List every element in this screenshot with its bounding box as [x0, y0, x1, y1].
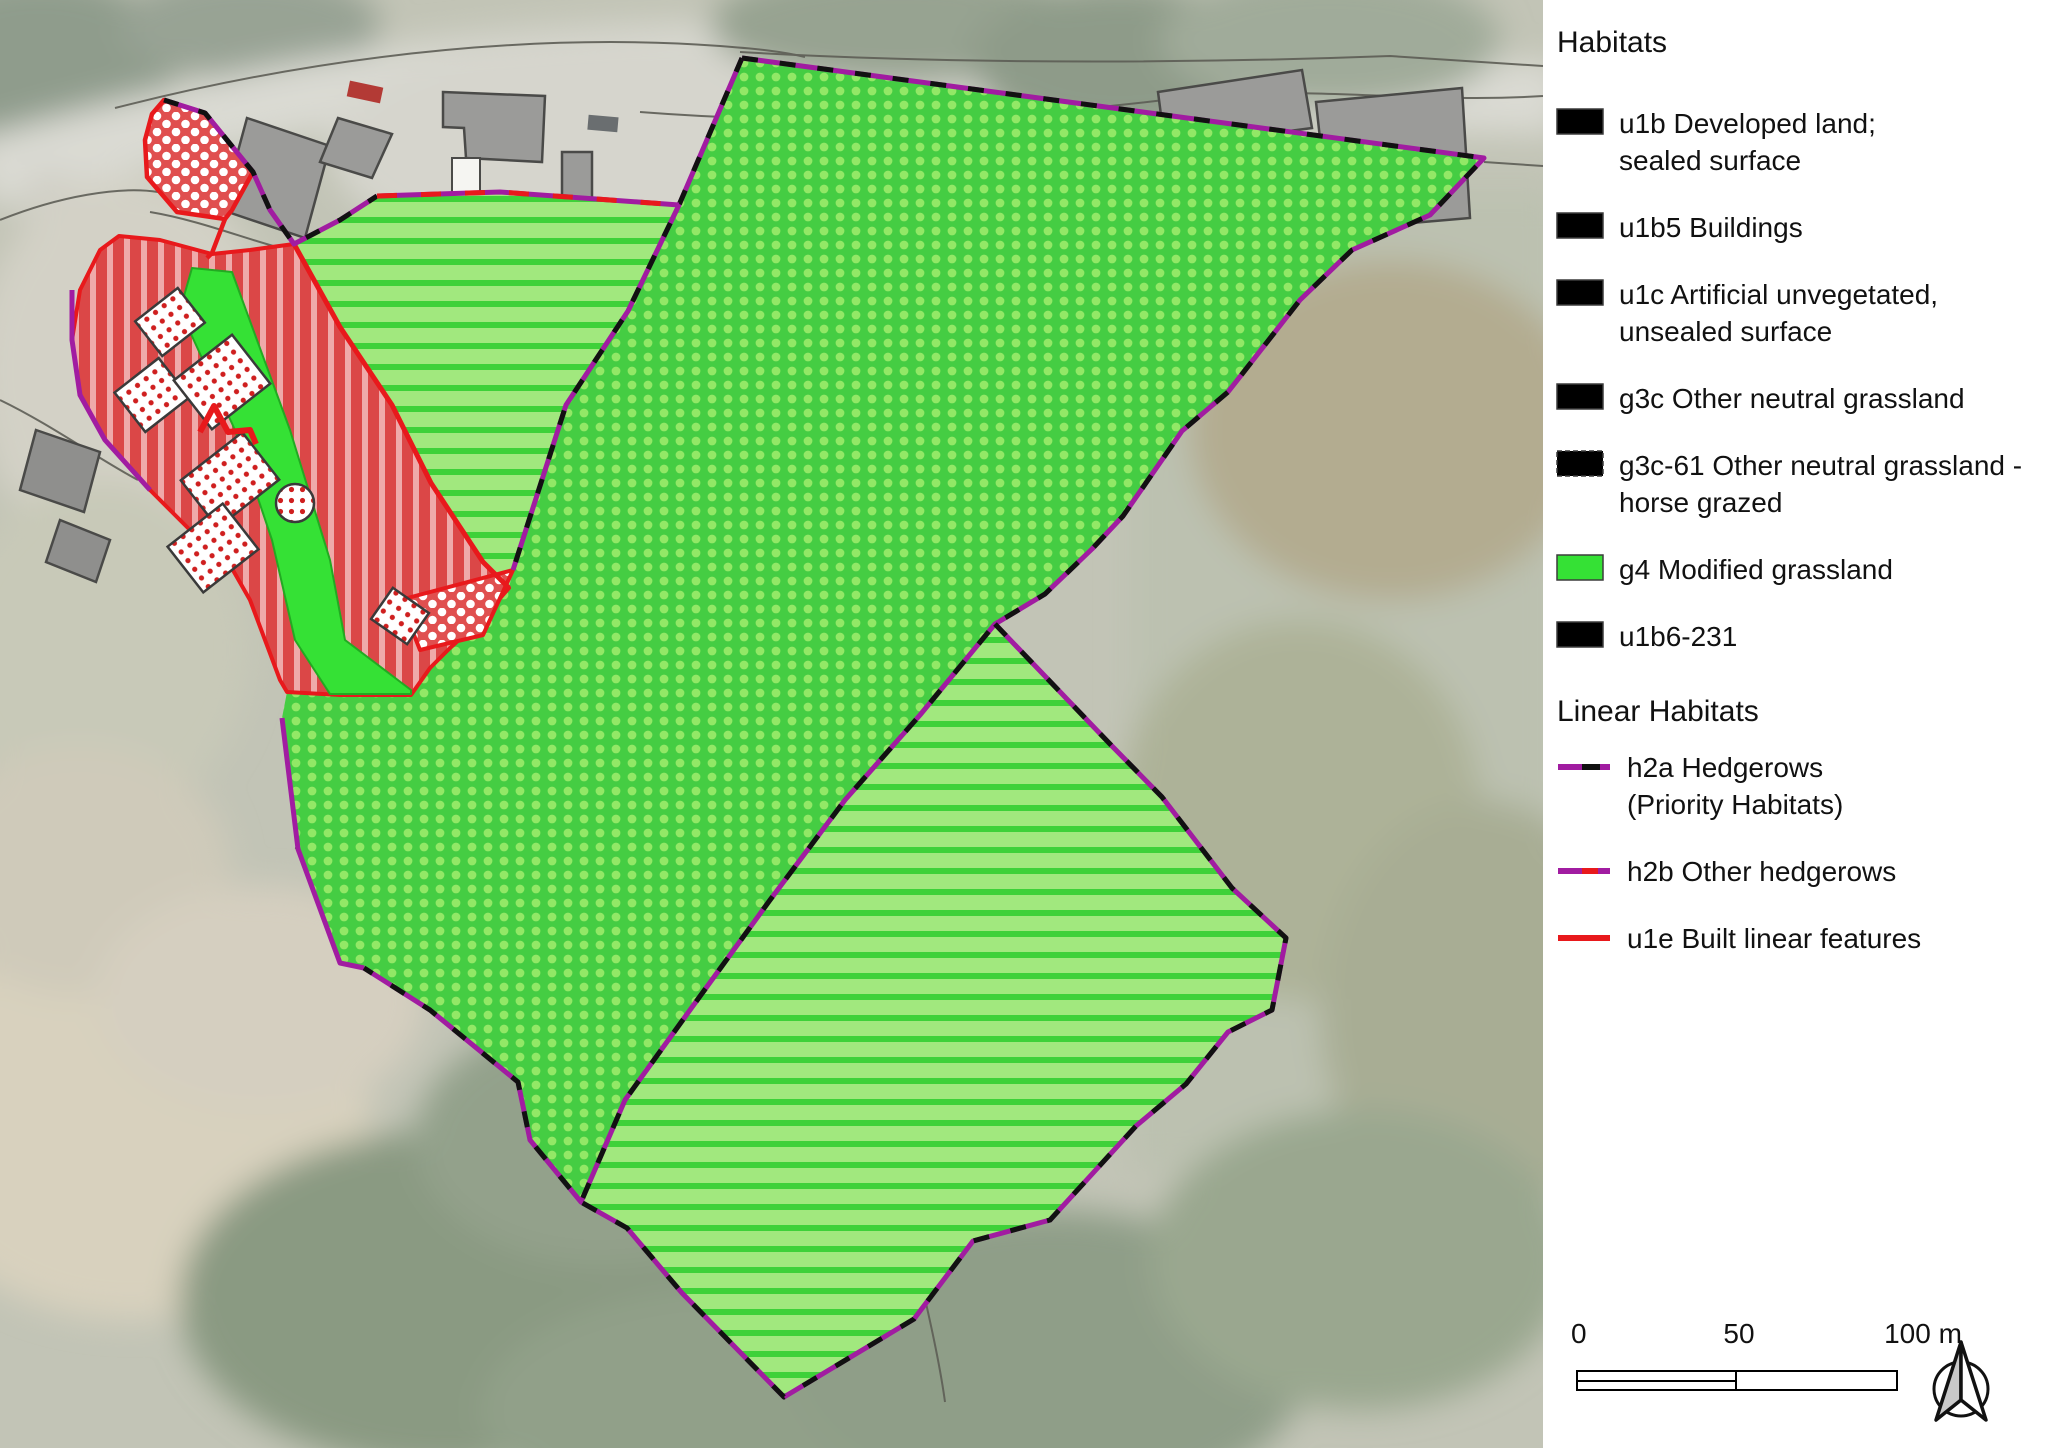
map-canvas [0, 0, 1543, 1448]
legend-item-label: h2a Hedgerows(Priority Habitats) [1627, 749, 1843, 823]
legend-item-u1c: u1c Artificial unvegetated,unsealed surf… [1556, 276, 2048, 350]
legend-item-label: g4 Modified grassland [1619, 551, 1893, 588]
purple-black-dashed-line-swatch [1556, 757, 1612, 777]
legend-item-label-line: sealed surface [1619, 142, 1876, 179]
legend-item-label-line: u1b6-231 [1619, 618, 1737, 655]
legend-item-label-line: u1b5 Buildings [1619, 209, 1803, 246]
legend-linear-items: h2a Hedgerows(Priority Habitats)h2b Othe… [1543, 749, 2048, 957]
legend-item-label: u1c Artificial unvegetated,unsealed surf… [1619, 276, 1938, 350]
legend-item-label-line: unsealed surface [1619, 313, 1938, 350]
legend-item-label: u1b6-231 [1619, 618, 1737, 655]
solid-green-swatch [1556, 554, 1604, 581]
legend-item-label: u1b Developed land;sealed surface [1619, 105, 1876, 179]
legend-item-g3c: g3c Other neutral grassland [1556, 380, 2048, 417]
habitat-map-page: Habitats u1b Developed land;sealed surfa… [0, 0, 2048, 1448]
scale-bar-graphic [1576, 1370, 1898, 1391]
green-horizontal-stripes-swatch [1556, 383, 1604, 410]
legend-linear-title: Linear Habitats [1557, 695, 2048, 729]
legend-item-g4: g4 Modified grassland [1556, 551, 2048, 588]
legend-item-label-line: g4 Modified grassland [1619, 551, 1893, 588]
legend-item-label: g3c Other neutral grassland [1619, 380, 1965, 417]
scale-bar-tick-50: 50 [1711, 1318, 1767, 1350]
white-red-dots-large-swatch [1556, 621, 1604, 648]
legend-habitats-title: Habitats [1557, 26, 2048, 60]
map-svg [0, 0, 1543, 1448]
legend-item-label: h2b Other hedgerows [1627, 853, 1896, 890]
legend-item-label-line: u1b Developed land; [1619, 105, 1876, 142]
scale-bar-tick-0: 0 [1571, 1318, 1587, 1350]
legend-item-label-line: (Priority Habitats) [1627, 786, 1843, 823]
legend-item-label: u1b5 Buildings [1619, 209, 1803, 246]
legend-item-h2b: h2b Other hedgerows [1556, 853, 2048, 890]
purple-red-line-swatch [1556, 861, 1612, 881]
red-white-dots-swatch [1556, 279, 1604, 306]
legend-item-u1e: u1e Built linear features [1556, 920, 2048, 957]
red-vertical-stripes-swatch [1556, 108, 1604, 135]
legend-item-h2a: h2a Hedgerows(Priority Habitats) [1556, 749, 2048, 823]
north-arrow-icon [1916, 1332, 2008, 1432]
legend-panel: Habitats u1b Developed land;sealed surfa… [1543, 0, 2048, 1448]
legend-item-label-line: g3c Other neutral grassland [1619, 380, 1965, 417]
legend-item-label-line: horse grazed [1619, 484, 2022, 521]
legend-item-label-line: u1c Artificial unvegetated, [1619, 276, 1938, 313]
legend-item-u1b6-231: u1b6-231 [1556, 618, 2048, 655]
legend-item-label: g3c-61 Other neutral grassland -horse gr… [1619, 447, 2022, 521]
legend-item-u1b5: u1b5 Buildings [1556, 209, 2048, 246]
white-red-dots-small-swatch [1556, 212, 1604, 239]
legend-habitat-items: u1b Developed land;sealed surfaceu1b5 Bu… [1543, 105, 2048, 655]
green-dots-dashed-border-swatch [1556, 450, 1604, 477]
legend-item-label: u1e Built linear features [1627, 920, 1921, 957]
legend-item-label-line: h2b Other hedgerows [1627, 853, 1896, 890]
red-line-swatch [1556, 928, 1612, 948]
legend-item-u1b: u1b Developed land;sealed surface [1556, 105, 2048, 179]
legend-item-label-line: u1e Built linear features [1627, 920, 1921, 957]
legend-item-label-line: h2a Hedgerows [1627, 749, 1843, 786]
car [587, 115, 618, 133]
legend-item-label-line: g3c-61 Other neutral grassland - [1619, 447, 2022, 484]
area-u1b5-building-round [276, 484, 314, 522]
legend-item-g3c-61: g3c-61 Other neutral grassland -horse gr… [1556, 447, 2048, 521]
scale-bar: 0 50 100 m [1543, 1318, 2048, 1448]
